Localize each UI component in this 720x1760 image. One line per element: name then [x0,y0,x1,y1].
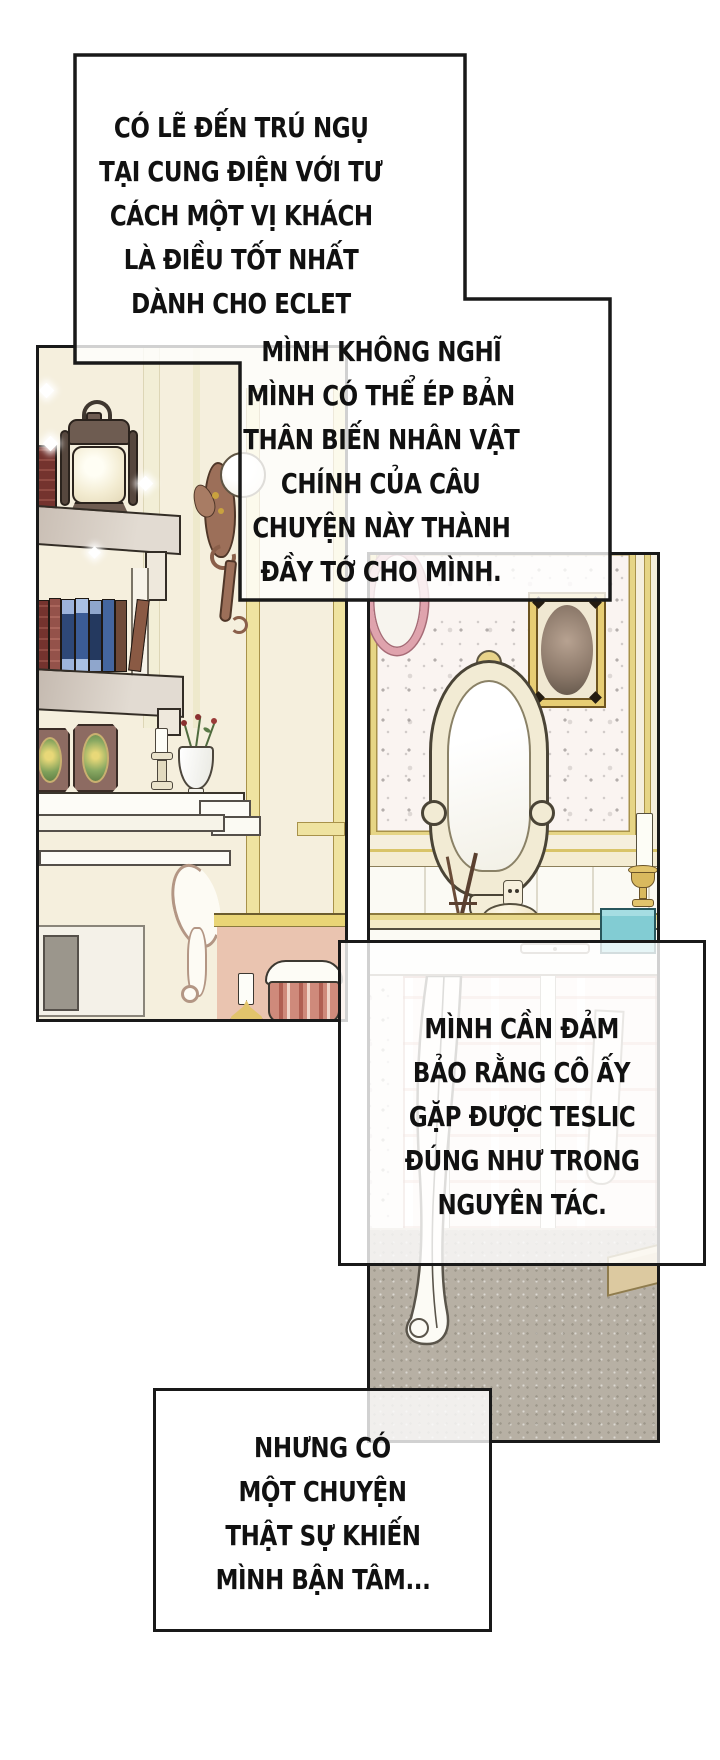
caption-line: ĐẦY TỚ CHO MÌNH. [261,550,502,594]
mirror-glass [447,680,531,872]
mirror-scroll [421,800,447,826]
gold-candle-cup [628,865,658,913]
firebox [37,925,145,1017]
floor-candle [238,973,254,1005]
caption-line: MÌNH KHÔNG NGHĨ [261,330,501,374]
frame-picture [82,733,109,783]
stool [265,960,343,1022]
caption-line: DÀNH CHO ECLET [131,282,351,326]
caption-box-2: MÌNH KHÔNG NGHĨ MÌNH CÓ THỂ ÉP BẢN THÂN … [211,330,551,594]
caption-line: MÌNH CÓ THỂ ÉP BẢN [247,374,515,418]
mirror-scroll [529,800,555,826]
caption-line: NGUYÊN TÁC. [438,1183,607,1227]
caption-line: MỘT CHUYỆN [238,1470,406,1514]
firebox-opening [43,935,79,1011]
caption-line: NHƯNG CÓ [254,1426,391,1470]
caption-line: LÀ ĐIỀU TỐT NHẤT [124,238,359,282]
stool-skirt [268,981,340,1022]
caption-line: BẢO RẰNG CÔ ẤY [413,1051,630,1095]
fireplace-scroll [171,863,223,1013]
chair-rail [214,913,345,927]
caption-line: THÂN BIẾN NHÂN VẬT [243,418,519,462]
picture-frame [73,724,118,792]
pillar-candle [636,813,653,869]
candle [155,728,168,754]
caption-line: CHÍNH CỦA CÂU [281,462,481,506]
caption-line: MÌNH CẦN ĐẢM [425,1007,620,1051]
caption-line: TẠI CUNG ĐIỆN VỚI TƯ [99,150,382,194]
caption-box-4: NHƯNG CÓ MỘT CHUYỆN THẬT SỰ KHIẾN MÌNH B… [153,1388,492,1632]
vase [178,746,214,790]
caption-line: GẶP ĐƯỢC TESLIC [409,1095,636,1139]
comic-page: CÓ LẼ ĐẾN TRÚ NGỤ TẠI CUNG ĐIỆN VỚI TƯ C… [0,0,720,1760]
caption-line: CÓ LẼ ĐẾN TRÚ NGỤ [114,106,369,150]
caption-line: ĐÚNG NHƯ TRONG [405,1139,640,1183]
picture-frame [36,728,70,792]
gold-molding-bar [297,822,345,836]
caption-box-1: CÓ LẼ ĐẾN TRÚ NGỤ TẠI CUNG ĐIỆN VỚI TƯ C… [75,106,407,326]
caption-line: CÁCH MỘT VỊ KHÁCH [110,194,373,238]
candlestick [151,752,173,792]
caption-line: MÌNH BẬN TÂM... [215,1558,430,1602]
frame-picture [38,737,62,783]
mantel-molding [36,814,225,832]
caption-line: THẬT SỰ KHIẾN [225,1514,420,1558]
caption-line: CHUYỆN NÀY THÀNH [252,506,510,550]
caption-box-3: MÌNH CẦN ĐẢM BẢO RẰNG CÔ ẤY GẶP ĐƯỢC TES… [338,940,706,1266]
